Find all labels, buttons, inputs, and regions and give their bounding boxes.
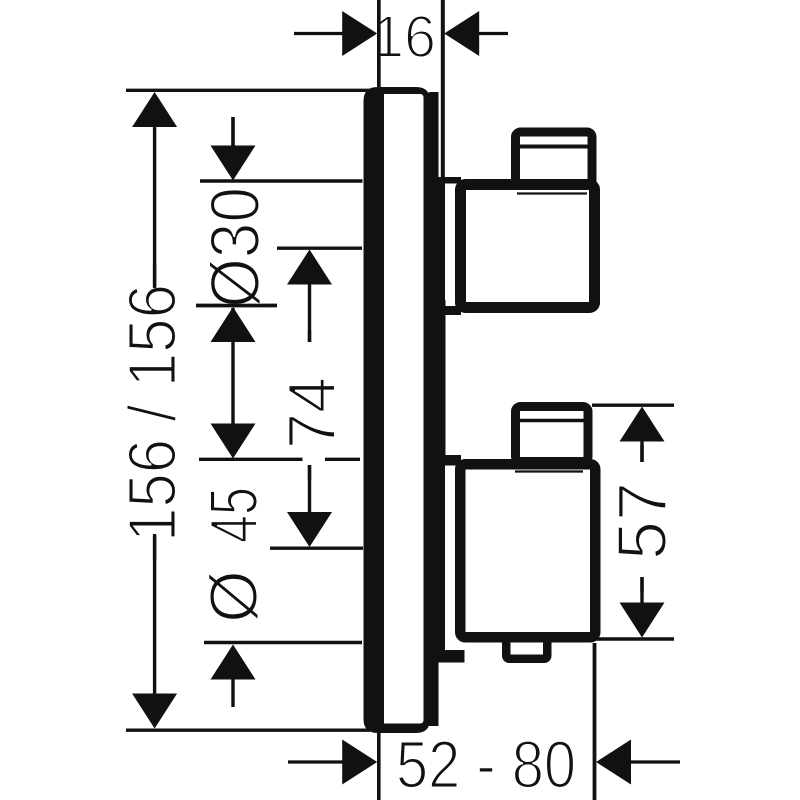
svg-text:74: 74 — [274, 377, 350, 449]
svg-text:52 - 80: 52 - 80 — [396, 728, 576, 800]
svg-text:45: 45 — [196, 487, 272, 543]
svg-text:Ø: Ø — [196, 570, 272, 623]
svg-text:Ø30: Ø30 — [196, 187, 274, 308]
svg-text:16: 16 — [372, 4, 436, 70]
svg-text:57: 57 — [603, 482, 681, 560]
svg-text:156 / 156: 156 / 156 — [115, 284, 191, 542]
